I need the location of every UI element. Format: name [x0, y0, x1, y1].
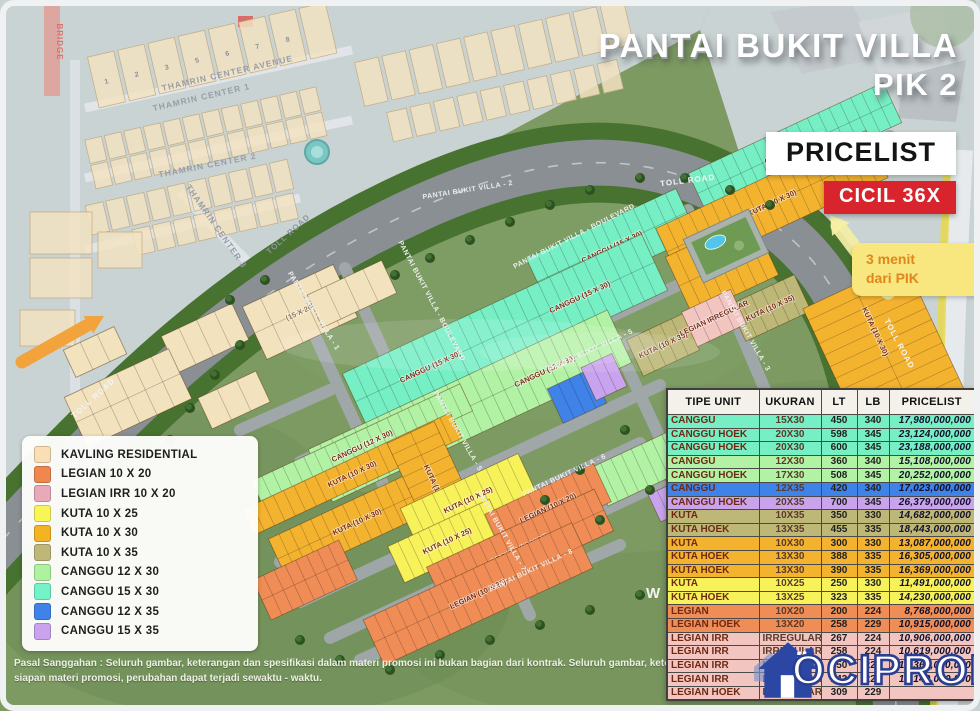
table-cell: 23,124,000,000 — [889, 428, 975, 442]
table-cell: 13X25 — [759, 591, 821, 605]
legend-label: CANGGU 12 X 35 — [61, 606, 159, 618]
legend-label: CANGGU 15 X 35 — [61, 625, 159, 637]
distance-chip-line1: 3 menit — [866, 250, 980, 269]
table-cell: 10X30 — [759, 537, 821, 551]
table-cell: LEGIAN IRR — [667, 673, 759, 687]
table-cell: 335 — [857, 523, 889, 537]
table-cell: 345 — [857, 496, 889, 510]
table-cell: 10X20 — [759, 605, 821, 619]
legend-swatch — [34, 583, 51, 600]
table-cell: 224 — [857, 605, 889, 619]
table-cell: CANGGU — [667, 455, 759, 469]
distance-chip-line2: dari PIK — [866, 269, 980, 288]
table-cell: 450 — [821, 415, 857, 429]
legend-swatch — [34, 485, 51, 502]
table-row: CANGGU HOEK17X3050834520,252,000,000 — [667, 469, 975, 483]
table-cell: 335 — [857, 564, 889, 578]
table-cell: 258 — [821, 618, 857, 632]
table-row: KUTA HOEK13X2532333514,230,000,000 — [667, 591, 975, 605]
table-cell: KUTA — [667, 510, 759, 524]
table-cell: 455 — [821, 523, 857, 537]
table-cell: 340 — [857, 415, 889, 429]
table-cell: 390 — [821, 564, 857, 578]
legend-swatch — [34, 603, 51, 620]
table-cell: 13X20 — [759, 618, 821, 632]
legend-swatch — [34, 544, 51, 561]
table-row: KUTA10X3535033014,682,000,000 — [667, 510, 975, 524]
legend-item: CANGGU 12 X 30 — [34, 563, 248, 583]
table-cell: 12X35 — [759, 482, 821, 496]
distance-chip: 3 menit dari PIK — [852, 243, 980, 296]
table-cell: 200 — [821, 605, 857, 619]
table-header-row: TIPE UNITUKURANLTLBPRICELIST — [667, 389, 975, 415]
table-cell: 340 — [857, 455, 889, 469]
table-cell: 8,768,000,000 — [889, 605, 975, 619]
table-header-cell: PRICELIST — [889, 389, 975, 415]
table-cell: 350 — [821, 510, 857, 524]
table-cell: 600 — [821, 442, 857, 456]
legend-items: KAVLING RESIDENTIALLEGIAN 10 X 20LEGIAN … — [34, 445, 248, 641]
legend-item: KUTA 10 X 35 — [34, 543, 248, 563]
table-cell: 13X30 — [759, 564, 821, 578]
table-row: KUTA HOEK13X3038833516,305,000,000 — [667, 550, 975, 564]
legend-swatch — [34, 466, 51, 483]
table-cell: 17X30 — [759, 469, 821, 483]
svg-text:W: W — [646, 585, 661, 602]
table-cell: 20,252,000,000 — [889, 469, 975, 483]
table-cell: LEGIAN IRR — [667, 646, 759, 660]
table-cell: LEGIAN IRR — [667, 632, 759, 646]
legend-swatch — [34, 505, 51, 522]
table-cell: 250 — [821, 578, 857, 592]
table-cell: 330 — [857, 510, 889, 524]
legend-label: KUTA 10 X 25 — [61, 508, 138, 520]
legend-label: KAVLING RESIDENTIAL — [61, 449, 197, 461]
table-cell: 340 — [857, 482, 889, 496]
table-header-cell: UKURAN — [759, 389, 821, 415]
table-cell: KUTA HOEK — [667, 564, 759, 578]
brand-name: OCIPROP — [792, 646, 980, 694]
table-cell: 229 — [857, 618, 889, 632]
table-cell: 10,915,000,000 — [889, 618, 975, 632]
page-title: PANTAI BUKIT VILLA PIK 2 — [599, 26, 958, 103]
table-cell: 345 — [857, 469, 889, 483]
table-cell: KUTA HOEK — [667, 550, 759, 564]
table-cell: 335 — [857, 591, 889, 605]
table-cell: 20X30 — [759, 442, 821, 456]
table-cell: CANGGU HOEK — [667, 442, 759, 456]
table-cell: 330 — [857, 578, 889, 592]
table-cell: 330 — [857, 537, 889, 551]
table-cell: 13X35 — [759, 523, 821, 537]
legend-swatch — [34, 623, 51, 640]
table-cell: CANGGU — [667, 482, 759, 496]
table-cell: 323 — [821, 591, 857, 605]
table-cell: 15,108,000,000 — [889, 455, 975, 469]
legend-swatch — [34, 525, 51, 542]
legend-item: KUTA 10 X 25 — [34, 504, 248, 524]
table-row: KUTA10X2525033011,491,000,000 — [667, 578, 975, 592]
table-cell: 23,188,000,000 — [889, 442, 975, 456]
table-row: KUTA HOEK13X3039033516,369,000,000 — [667, 564, 975, 578]
map-legend: KAVLING RESIDENTIALLEGIAN 10 X 20LEGIAN … — [22, 436, 258, 651]
legend-label: LEGIAN 10 X 20 — [61, 468, 151, 480]
installment-badge: CICIL 36X — [824, 181, 956, 214]
table-row: CANGGU HOEK20X3059834523,124,000,000 — [667, 428, 975, 442]
legend-label: CANGGU 15 X 30 — [61, 586, 159, 598]
table-cell: 300 — [821, 537, 857, 551]
table-cell: 598 — [821, 428, 857, 442]
table-cell: 700 — [821, 496, 857, 510]
legend-item: KAVLING RESIDENTIAL — [34, 445, 248, 465]
table-row: CANGGU12X3542034017,023,000,000 — [667, 482, 975, 496]
legend-item: LEGIAN IRR 10 X 20 — [34, 484, 248, 504]
legend-label: CANGGU 12 X 30 — [61, 566, 159, 578]
table-cell: 20X30 — [759, 428, 821, 442]
table-row: CANGGU15X3045034017,980,000,000 — [667, 415, 975, 429]
table-cell: LEGIAN IRR — [667, 659, 759, 673]
table-cell: KUTA — [667, 578, 759, 592]
legend-item: CANGGU 15 X 35 — [34, 621, 248, 641]
legend-item: CANGGU 12 X 35 — [34, 602, 248, 622]
table-cell: 360 — [821, 455, 857, 469]
table-cell: CANGGU HOEK — [667, 496, 759, 510]
table-cell: 11,491,000,000 — [889, 578, 975, 592]
table-cell: 17,023,000,000 — [889, 482, 975, 496]
table-cell: 20X35 — [759, 496, 821, 510]
table-row: CANGGU HOEK20X3570034526,379,000,000 — [667, 496, 975, 510]
table-cell: 388 — [821, 550, 857, 564]
table-cell: 26,379,000,000 — [889, 496, 975, 510]
table-cell: 508 — [821, 469, 857, 483]
table-cell: 13,087,000,000 — [889, 537, 975, 551]
legend-item: CANGGU 15 X 30 — [34, 582, 248, 602]
brand-logo: OCIPROP — [752, 632, 980, 710]
table-cell: 17,980,000,000 — [889, 415, 975, 429]
table-cell: 12X30 — [759, 455, 821, 469]
legend-item: LEGIAN 10 X 20 — [34, 465, 248, 485]
table-header-cell: LT — [821, 389, 857, 415]
table-header-cell: TIPE UNIT — [667, 389, 759, 415]
legend-label: LEGIAN IRR 10 X 20 — [61, 488, 176, 500]
table-cell: KUTA — [667, 537, 759, 551]
table-cell: LEGIAN HOEK — [667, 686, 759, 700]
table-cell: 335 — [857, 550, 889, 564]
legend-label: KUTA 10 X 30 — [61, 527, 138, 539]
pricelist-heading: PRICELIST — [766, 132, 956, 175]
pond — [305, 140, 329, 164]
table-cell: 16,369,000,000 — [889, 564, 975, 578]
legend-swatch — [34, 564, 51, 581]
table-row: LEGIAN10X202002248,768,000,000 — [667, 605, 975, 619]
table-cell: CANGGU HOEK — [667, 469, 759, 483]
table-cell: 13X30 — [759, 550, 821, 564]
svg-text:BRIDGE: BRIDGE — [55, 23, 64, 60]
table-cell: 345 — [857, 442, 889, 456]
table-cell: LEGIAN — [667, 605, 759, 619]
table-cell: 10X35 — [759, 510, 821, 524]
table-header-cell: LB — [857, 389, 889, 415]
table-cell: 18,443,000,000 — [889, 523, 975, 537]
table-cell: LEGIAN HOEK — [667, 618, 759, 632]
title-line1: PANTAI BUKIT VILLA — [599, 26, 958, 66]
table-cell: 14,230,000,000 — [889, 591, 975, 605]
legend-item: KUTA 10 X 30 — [34, 523, 248, 543]
table-cell: 420 — [821, 482, 857, 496]
table-row: KUTA HOEK13X3545533518,443,000,000 — [667, 523, 975, 537]
table-cell: CANGGU HOEK — [667, 428, 759, 442]
legend-label: KUTA 10 X 35 — [61, 547, 138, 559]
table-cell: 15X30 — [759, 415, 821, 429]
table-row: LEGIAN HOEK13X2025822910,915,000,000 — [667, 618, 975, 632]
title-line2: PIK 2 — [599, 66, 958, 103]
legend-swatch — [34, 446, 51, 463]
table-cell: 14,682,000,000 — [889, 510, 975, 524]
table-cell: KUTA HOEK — [667, 523, 759, 537]
flyer-root: { "title": {"line1": "PANTAI BUKIT VILLA… — [0, 0, 980, 711]
table-cell: KUTA HOEK — [667, 591, 759, 605]
table-row: KUTA10X3030033013,087,000,000 — [667, 537, 975, 551]
table-cell: 345 — [857, 428, 889, 442]
table-row: CANGGU HOEK20X3060034523,188,000,000 — [667, 442, 975, 456]
table-cell: 10X25 — [759, 578, 821, 592]
table-cell: 16,305,000,000 — [889, 550, 975, 564]
table-cell: CANGGU — [667, 415, 759, 429]
table-row: CANGGU12X3036034015,108,000,000 — [667, 455, 975, 469]
